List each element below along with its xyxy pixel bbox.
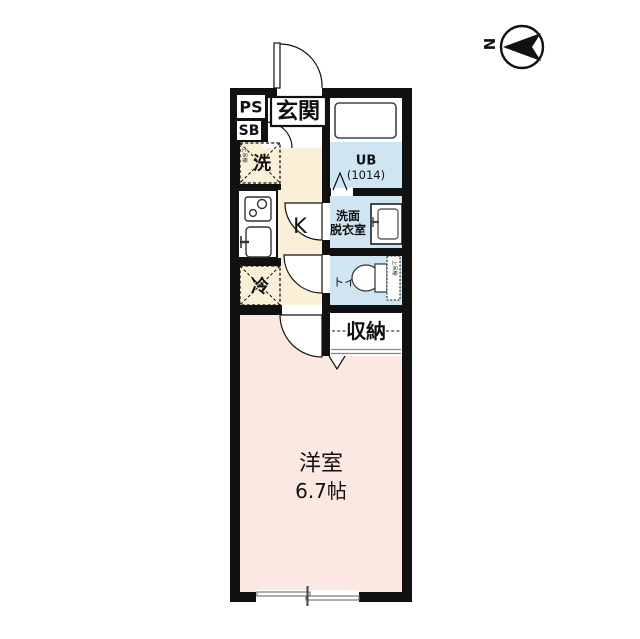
washbasin-icon (371, 204, 402, 244)
fridge-label: 冷 (251, 276, 269, 298)
toilet-shelf-area: 上吊棚 (387, 256, 400, 300)
toilet-shelf-note: 上吊棚 (391, 260, 398, 275)
wall-closet-left (322, 305, 330, 356)
wall-washroom-bottom (330, 248, 402, 256)
entrance-door-icon (274, 43, 322, 88)
closet-label: 収納 (346, 319, 386, 343)
toilet-door-opening (322, 255, 330, 293)
unit-bath-size: (1014) (347, 168, 385, 182)
washer-note: 上吊棚 (241, 147, 248, 162)
toilet-icon (352, 264, 387, 292)
ps-label: PS (239, 98, 262, 117)
unit-bath-label: UB (356, 154, 376, 169)
stove-icon (245, 197, 271, 221)
kitchen-counter (238, 190, 277, 258)
bath-door-opening (331, 188, 353, 196)
entrance-label: 玄関 (276, 99, 320, 125)
north-label: N (481, 38, 499, 51)
wall-left (230, 88, 240, 602)
kitchen-label: K (293, 214, 308, 238)
room-name-label: 洋室 (299, 452, 343, 477)
wall-kitchen-bottom (240, 258, 281, 266)
washroom-door-opening (322, 203, 330, 240)
washroom-label-2: 脱衣室 (330, 222, 366, 237)
floor-plan: PS SB 玄関 洗 上吊棚 K 冷 UB (1014) 洗面 (0, 0, 640, 639)
closet-door-track (330, 347, 402, 356)
bathtub-icon (335, 103, 396, 138)
room-size-label: 6.7帖 (295, 479, 347, 503)
compass-icon: N (481, 26, 543, 68)
wall-toilet-bottom (330, 305, 402, 313)
sb-label: SB (239, 123, 260, 139)
washroom-label-1: 洗面 (336, 208, 360, 223)
floor-plan-canvas: PS SB 玄関 洗 上吊棚 K 冷 UB (1014) 洗面 (0, 0, 640, 639)
room-door-opening (282, 305, 322, 315)
wall-right (402, 88, 412, 602)
wall-hall-room (240, 305, 282, 315)
washer-label: 洗 (253, 153, 271, 175)
